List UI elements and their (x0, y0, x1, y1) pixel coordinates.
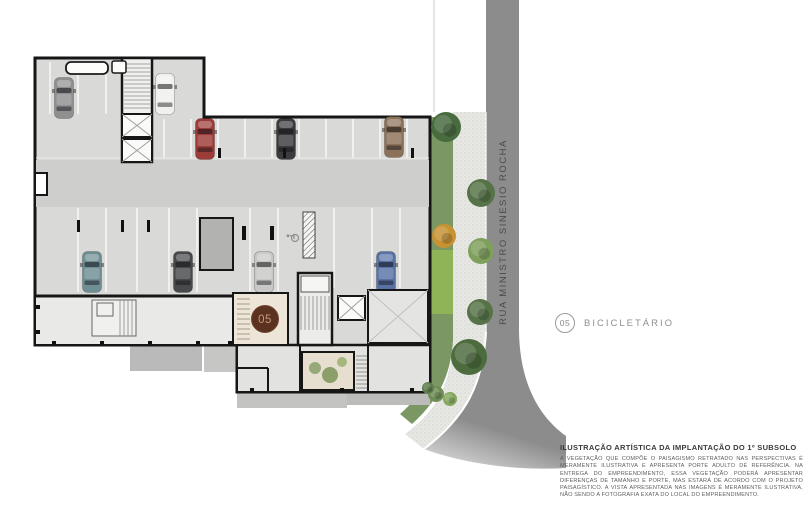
tree (451, 339, 487, 375)
tree (422, 382, 434, 394)
car (382, 117, 406, 158)
tree (431, 112, 461, 142)
shaft-block (200, 218, 233, 270)
service-room (368, 290, 428, 343)
tree (467, 179, 495, 207)
lower-left-stair (92, 300, 136, 336)
legend-item-bicicletario: 05 BICICLETÁRIO (555, 313, 674, 333)
street-label: RUA MINISTRO SINESIO ROCHA (498, 139, 509, 325)
legend-label: BICICLETÁRIO (584, 318, 674, 329)
elevator-central (338, 296, 365, 320)
tree (443, 392, 457, 406)
hatched-column (303, 212, 315, 258)
car (252, 252, 276, 293)
storage-box (66, 62, 108, 74)
page: 05 RUA MINISTRO SINESIO ROCHA 05 BICICLE… (0, 0, 803, 530)
wall-niche (35, 173, 47, 195)
stair-core-central (298, 273, 332, 345)
car (153, 74, 177, 115)
car (80, 252, 104, 293)
caption-block: ILUSTRAÇÃO ARTÍSTICA DA IMPLANTAÇÃO DO 1… (560, 443, 803, 500)
caption-title: ILUSTRAÇÃO ARTÍSTICA DA IMPLANTAÇÃO DO 1… (560, 443, 803, 452)
car (52, 78, 76, 119)
car (193, 119, 217, 160)
caption-disclaimer: A VEGETAÇÃO QUE COMPÕE O PAISAGISMO RETR… (560, 456, 803, 500)
tree (467, 299, 493, 325)
plan-marker-05: 05 (252, 306, 279, 333)
stair-elevator-core-upper (122, 58, 152, 162)
storage-box-small (112, 61, 126, 73)
tree (432, 224, 456, 248)
drive-lane (36, 160, 429, 207)
tree (468, 238, 494, 264)
legend-number-badge: 05 (555, 313, 575, 333)
garden-atrium (302, 352, 354, 390)
car (171, 252, 195, 293)
car (374, 252, 398, 293)
plan-marker-number: 05 (258, 314, 272, 326)
